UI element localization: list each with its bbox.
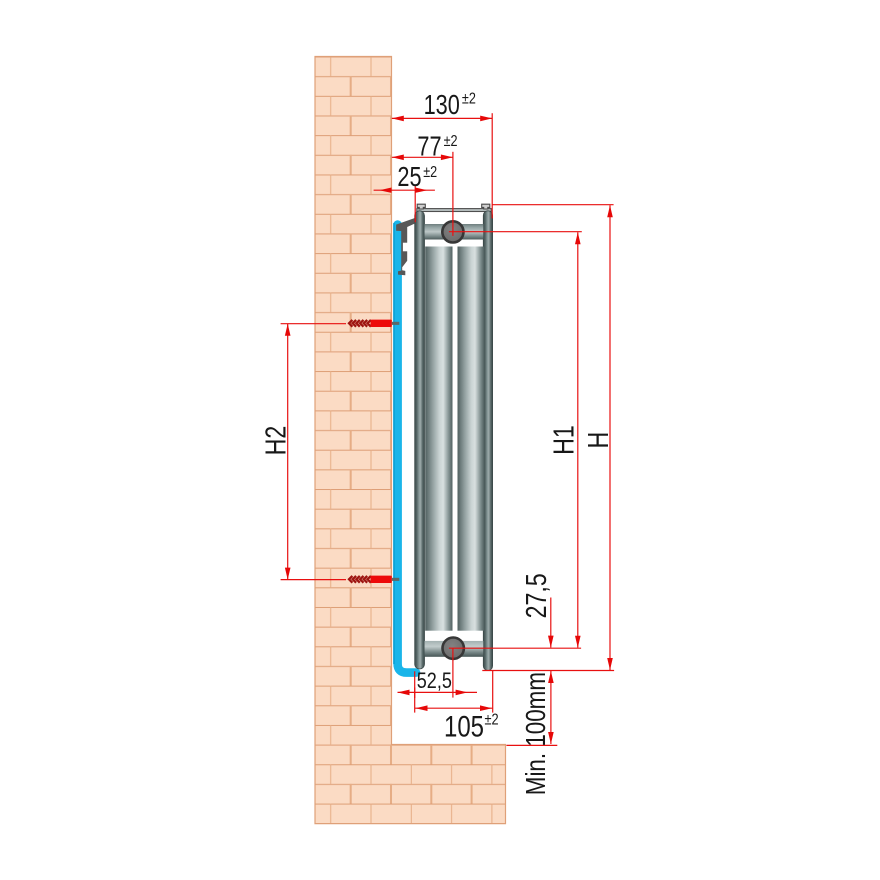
svg-text:52,5: 52,5 bbox=[417, 670, 452, 694]
svg-text:H1: H1 bbox=[547, 425, 580, 455]
svg-text:H: H bbox=[581, 432, 614, 449]
svg-text:±2: ±2 bbox=[462, 90, 476, 108]
svg-text:77: 77 bbox=[417, 132, 441, 162]
svg-text:±2: ±2 bbox=[423, 164, 437, 182]
svg-text:27,5: 27,5 bbox=[519, 573, 552, 618]
svg-text:25: 25 bbox=[397, 163, 421, 193]
svg-text:Min. 100mm: Min. 100mm bbox=[521, 672, 552, 795]
svg-text:105: 105 bbox=[444, 709, 484, 743]
svg-text:±2: ±2 bbox=[485, 711, 499, 729]
svg-text:±2: ±2 bbox=[444, 133, 458, 151]
svg-text:H2: H2 bbox=[259, 426, 292, 456]
svg-text:130: 130 bbox=[424, 91, 460, 121]
